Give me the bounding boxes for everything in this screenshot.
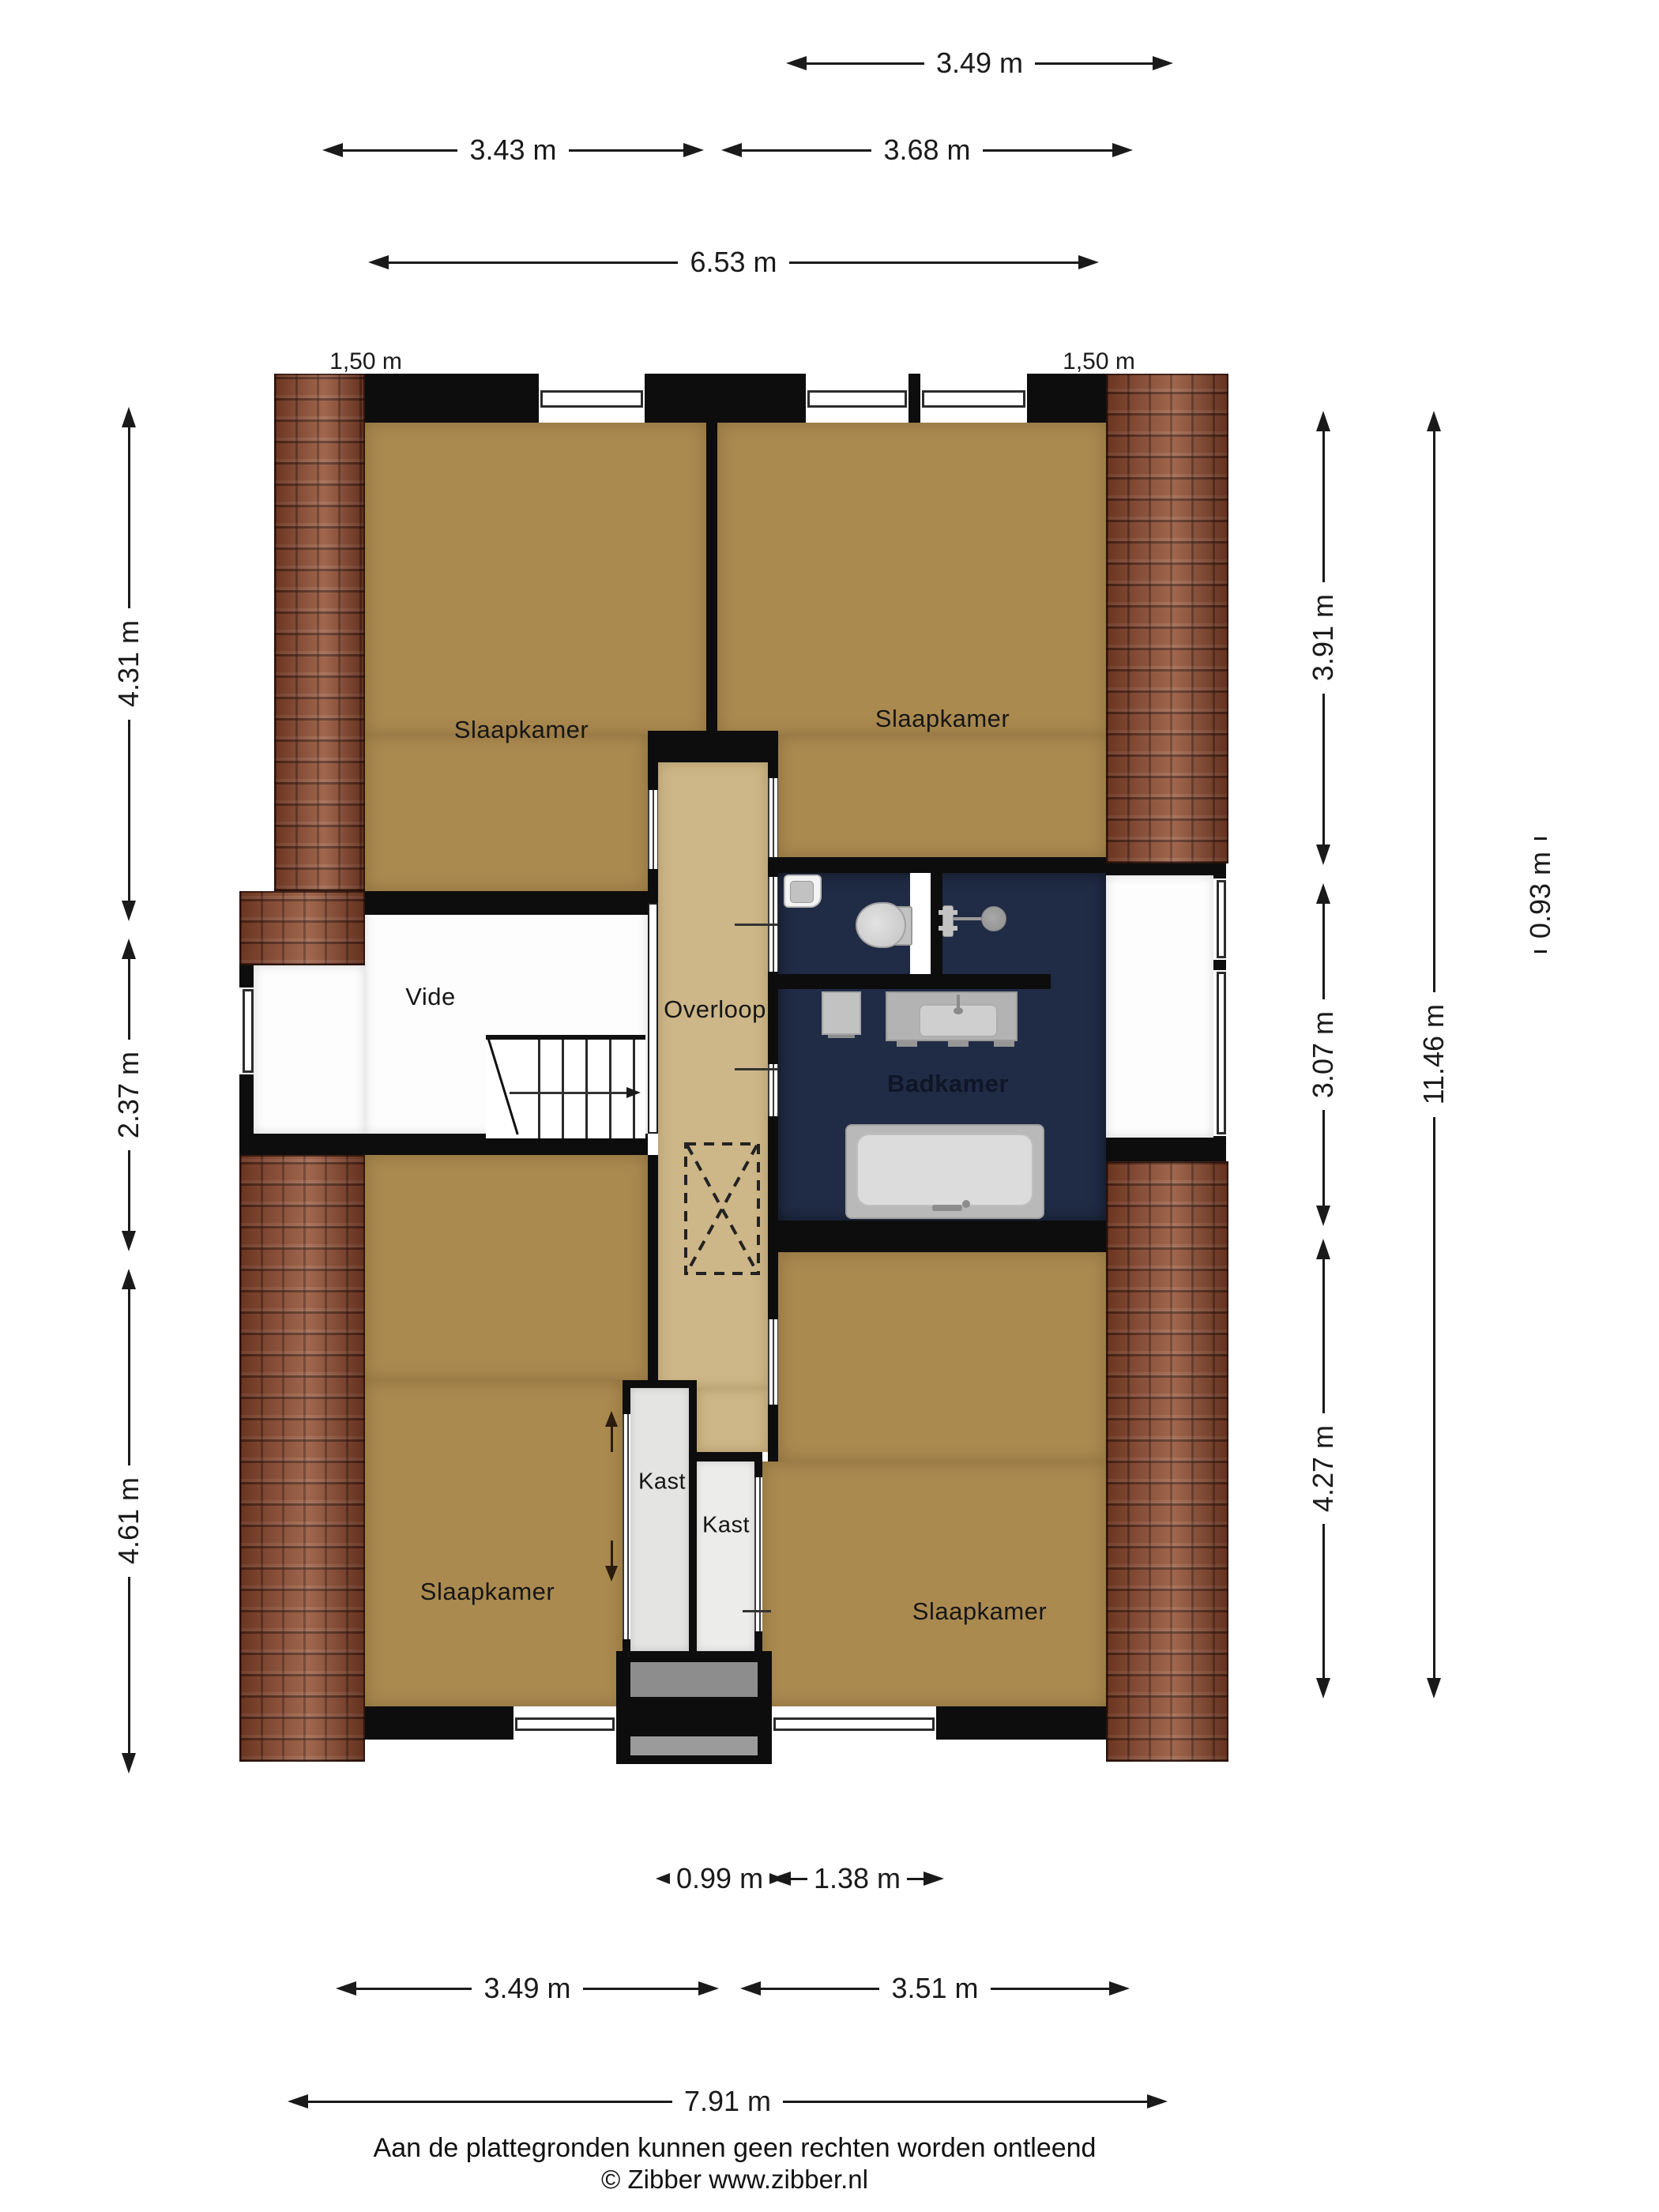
door-opening-closet-left [623,1414,630,1639]
door-opening-bedroom-tl [648,790,658,869]
dimension-label: 4.61 m [112,1465,145,1576]
floor-bedroom-top-right [778,735,1106,857]
footer-disclaimer: Aan de plattegronden kunnen geen rechten… [374,2133,1097,2164]
roof-tiles-left-notch [239,891,365,965]
room-label-bedroom-bl: Slaapkamer [420,1578,555,1606]
staircase [486,1035,645,1138]
floor-bedroom-top-right [717,423,1106,735]
roof-tiles-bottom-left [239,1155,365,1762]
room-label-badkamer: Badkamer [887,1070,1009,1098]
wall-bedroom-tl-bottom [365,891,658,915]
dimension-right-427: 4.27 m [1306,1239,1341,1698]
wall-bathroom-stub [778,974,1051,989]
stair-direction-arrow-icon [626,1087,641,1098]
wall-landing-left-lower [648,1155,658,1388]
eave-height-label-right: 1,50 m [1063,348,1135,375]
floor-bedroom-bottom-left [365,1155,648,1380]
vanity-tap-base [954,1007,963,1014]
dimension-bottom-791: 7.91 m [288,2084,1168,2119]
dimension-label: 3.49 m [924,47,1035,80]
window-glyph-bottom-right [772,1706,936,1740]
wall-closet-left-north [623,1380,689,1388]
dimension-label: 2.37 m [112,1040,145,1150]
wall-partition-top-bedrooms [706,423,717,735]
wall-bathroom-south [778,1221,1106,1252]
dimension-label: 3.68 m [871,134,982,167]
dimension-label: 11.46 m [1417,992,1450,1116]
hand-basin-bowl [790,881,814,903]
dimension-label: 3.49 m [472,1972,582,2005]
stair-winder-edge [487,1039,519,1134]
floor-vide [254,965,365,1134]
shower-arm [954,917,985,920]
window-glyph-top-right-a [806,374,908,423]
door-opening-bedroom-br [768,1319,778,1405]
floor-closet-right [697,1461,754,1651]
room-label-overloop: Overloop [664,995,766,1024]
window-glyph-bay-lower [1213,970,1226,1136]
floor-bedroom-bottom-right [778,1252,1106,1461]
floor-bedroom-top-left [365,423,706,735]
vide-railing [648,903,658,1134]
dimension-right-1146: 11.46 m [1416,411,1451,1698]
arrow-down-icon [605,1566,618,1582]
dimension-label: 3.43 m [457,134,568,167]
wall-bay-south [1106,1138,1226,1161]
dimension-top-343: 3.43 m [322,133,704,167]
dimension-label: 4.27 m [1307,1413,1340,1524]
footer-copyright: © Zibber www.zibber.nl [601,2165,868,2195]
floor-closet-left [630,1388,689,1651]
window-glyph-top-right-b [920,374,1027,423]
dimension-left-431: 4.31 m [111,407,146,921]
floor-dormer-bay [1106,875,1213,1138]
dimension-right-307: 3.07 m [1306,883,1341,1226]
toilet-bowl [856,902,906,948]
eave-height-label-left: 1,50 m [329,348,402,375]
bathtub-drain [962,1200,970,1208]
room-label-kast-right: Kast [702,1513,750,1539]
vanity-counter [886,991,1018,1041]
dimension-bottom-351: 3.51 m [740,1971,1130,2006]
dimension-label: 1.38 m [807,1862,907,1895]
stair-direction-line [510,1092,628,1094]
wall-bathroom-north [778,857,1106,873]
wall-toilet-divider [931,873,942,974]
dimension-left-461: 4.61 m [111,1269,146,1774]
door-leaf-mark [735,1068,778,1070]
door-leaf-mark [735,924,778,926]
door-leaf-mark [743,1610,771,1612]
room-label-vide: Vide [405,983,456,1011]
dimension-label: 0.99 m [670,1862,769,1895]
dimension-right-093: 0.93 m [1523,837,1558,1027]
roof-tiles-top-left [274,374,365,891]
window-glyph-bay-upper [1213,878,1226,960]
door-opening-closet-right [754,1477,762,1631]
dimension-right-391: 3.91 m [1306,411,1341,865]
arrow-down-stem [611,1540,613,1567]
vanity-foot [897,1041,917,1047]
floorplan-page: Slaapkamer Slaapkamer Slaapkamer Slaapka… [0,0,1659,2212]
cabinet-feet [828,1035,855,1038]
room-label-bedroom-br: Slaapkamer [912,1597,1047,1626]
roof-tiles-top-right [1106,374,1228,863]
wall-closet-divider [689,1380,697,1653]
dimension-label: 7.91 m [672,2085,783,2118]
window-glyph-bottom-left [513,1706,616,1740]
dimension-label: 0.93 m [1524,840,1557,950]
dimension-bottom-099: 0.99 m [656,1861,774,1896]
wall-bay-north [1106,863,1226,875]
floor-bedroom-bottom-left [365,1380,623,1706]
roof-tiles-bottom-right [1106,1161,1228,1762]
window-glyph-top-left [539,374,645,423]
room-label-kast-left: Kast [638,1469,686,1495]
dimension-label: 3.51 m [879,1972,990,2005]
dimension-top-653: 6.53 m [368,245,1099,280]
door-gap-shower [910,873,931,974]
dimension-top-349: 3.49 m [786,46,1173,81]
door-opening-bedroom-tr [768,778,778,857]
shower-head-icon [981,906,1006,931]
dimension-left-237: 2.37 m [111,939,146,1251]
entry-dormer-step-upper [630,1662,758,1697]
arrow-up-stem [611,1425,613,1452]
floor-landing [658,762,768,1388]
dimension-label: 6.53 m [678,246,788,279]
wall-closet-right-north [697,1452,762,1461]
shower-valve-knob [939,926,957,931]
roof-window-dashed-icon [683,1142,761,1276]
dimension-label: 4.31 m [112,608,145,719]
dimension-bottom-349: 3.49 m [336,1971,719,2006]
bathtub [845,1124,1044,1219]
bathroom-cabinet [822,991,861,1035]
vanity-foot [948,1041,969,1047]
bathtub-tap-icon [932,1205,962,1211]
hand-basin [784,875,822,908]
shower-valve-knob [939,910,957,915]
door-opening-bathroom [768,1064,778,1116]
arrow-up-icon [605,1411,618,1427]
floor-landing [697,1388,768,1452]
dimension-label: 3.91 m [1307,582,1340,693]
dimension-top-368: 3.68 m [721,133,1133,167]
wall-landing-head [648,731,778,762]
dimension-label: 3.07 m [1307,999,1340,1110]
floor-bedroom-bottom-right [762,1461,1106,1706]
room-label-bedroom-tl: Slaapkamer [454,716,589,744]
dimension-bottom-138: 1.38 m [770,1861,944,1896]
room-label-bedroom-tr: Slaapkamer [875,705,1010,733]
bathtub-basin [856,1134,1033,1206]
entry-dormer-step-lower [630,1736,758,1755]
floor-bedroom-top-left [365,735,648,891]
vanity-foot [994,1041,1014,1047]
window-glyph-vide-west [239,987,254,1074]
